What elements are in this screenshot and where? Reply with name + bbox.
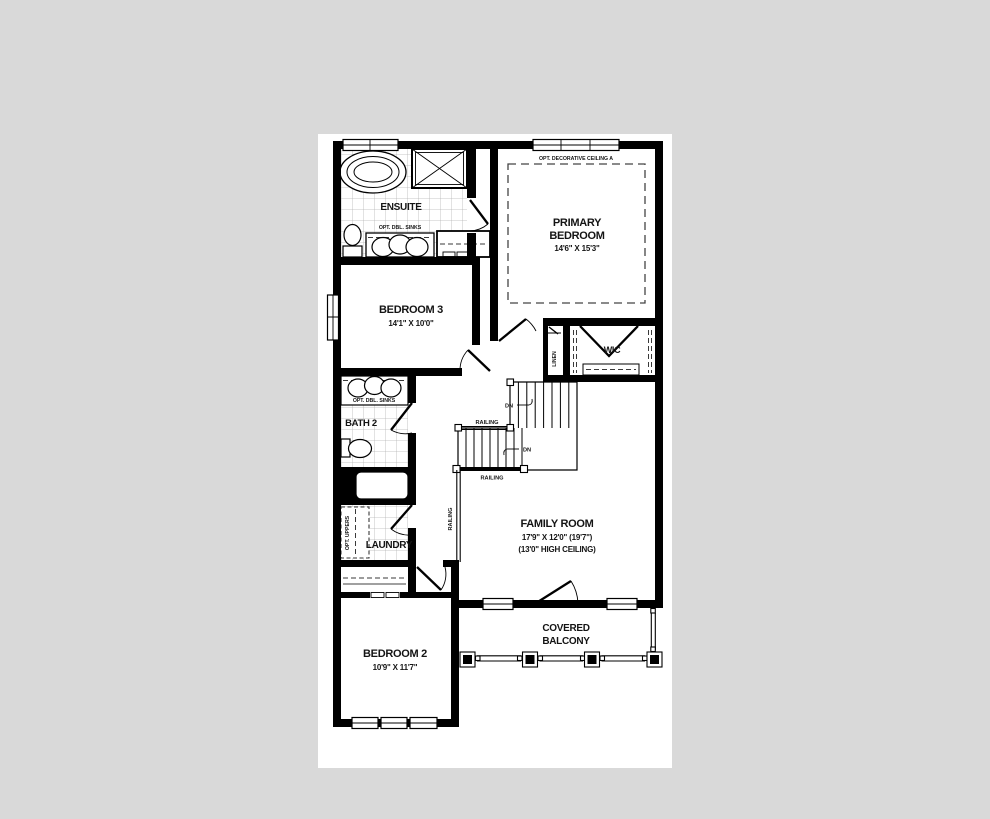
bedroom2-dims: 10'9" X 11'7": [373, 663, 418, 672]
bathtub-icon: [340, 151, 406, 193]
window: [343, 140, 398, 151]
window: [352, 718, 378, 729]
bath2-label: BATH 2: [345, 418, 377, 429]
linen-closet: [437, 231, 490, 257]
primary-bedroom-label: PRIMARY: [553, 217, 602, 229]
balcony-post: [460, 652, 475, 667]
window: [410, 718, 437, 729]
closet-bifold-door: [386, 593, 399, 598]
ensuite-sinks-note: OPT. DBL. SINKS: [379, 225, 422, 231]
bath2-tile-floor: [341, 405, 408, 467]
ensuite-double-sink-icon: [366, 233, 434, 257]
ensuite-toilet-icon: [343, 225, 362, 258]
closet-bifold-door: [371, 593, 384, 598]
window: [328, 295, 339, 340]
bath2-tub-icon: [356, 472, 408, 499]
window: [483, 599, 513, 610]
balcony-post: [647, 652, 662, 667]
bedroom2-label: BEDROOM 2: [363, 648, 427, 660]
bath2-sinks-note: OPT. DBL. SINKS: [353, 398, 396, 404]
primary-bedroom-label2: BEDROOM: [549, 230, 604, 242]
linen-label: LINEN: [552, 351, 558, 367]
balcony-label2: BALCONY: [542, 636, 590, 647]
balcony-label: COVERED: [542, 623, 589, 634]
railing-label-low: RAILING: [481, 476, 504, 482]
bedroom3-dims: 14'1" X 10'0": [388, 319, 434, 328]
bath2-toilet-icon: [341, 439, 372, 458]
window: [607, 599, 637, 610]
floor-plan: ENSUITE OPT. DBL. SINKS OPT. DECORATIVE …: [0, 0, 990, 819]
dn-label-lower: DN: [523, 448, 531, 454]
window: [533, 140, 619, 151]
primary-bedroom-dims: 14'6" X 15'3": [554, 244, 600, 253]
family-room-label: FAMILY ROOM: [520, 518, 593, 530]
shower-icon: [412, 149, 467, 188]
family-room-dims: 17'9" X 12'0" (19'7"): [522, 533, 593, 542]
laundry-label: LAUNDRY: [366, 540, 413, 551]
opt-uppers-note: OPT. UPPERS: [345, 515, 351, 550]
bedroom3-label: BEDROOM 3: [379, 304, 443, 316]
family-room-ceiling: (13'0" HIGH CEILING): [518, 545, 596, 554]
primary-ceiling-note: OPT. DECORATIVE CEILING A: [539, 156, 613, 162]
wic-label: WIC: [604, 345, 621, 355]
railing-label-vert: RAILING: [448, 508, 454, 531]
dn-label-upper: DN: [505, 404, 513, 410]
balcony-post: [523, 652, 538, 667]
window: [381, 718, 407, 729]
railing-label-mid: RAILING: [476, 420, 499, 426]
ensuite-label: ENSUITE: [380, 202, 422, 213]
balcony-post: [585, 652, 600, 667]
